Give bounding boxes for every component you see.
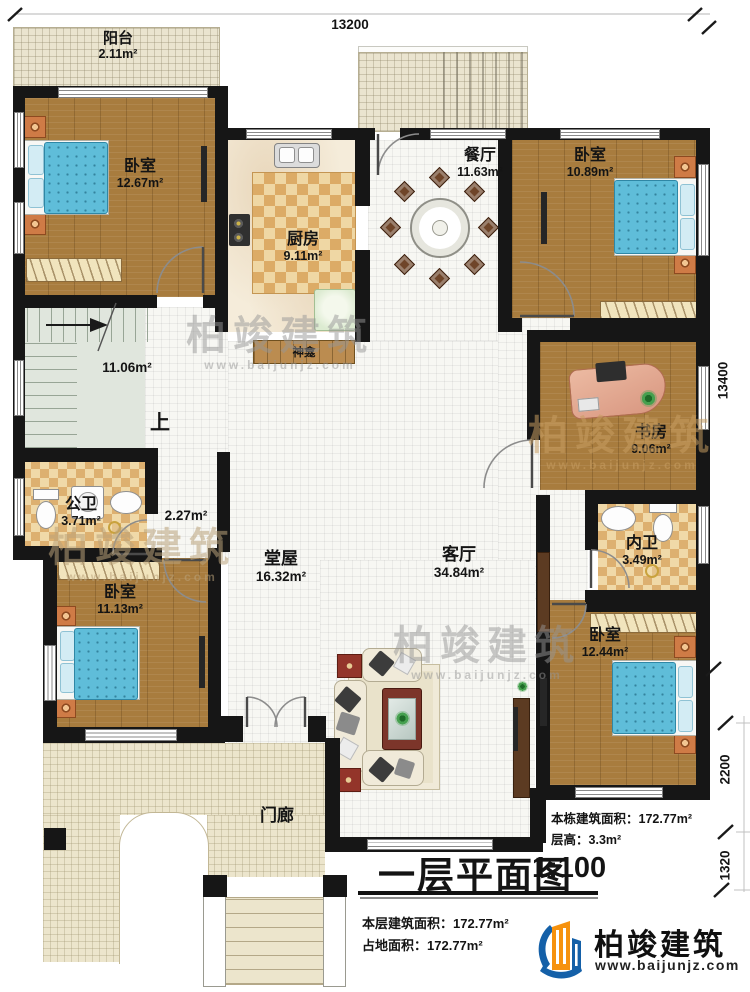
stove-burner [231, 232, 246, 243]
wall [325, 738, 340, 848]
window [575, 787, 663, 798]
room-label-kitchen: 厨房 9.11m² [284, 231, 323, 264]
pillow [680, 184, 695, 216]
dimension-side-lower: 2200 [718, 742, 733, 798]
room-name: 卧室 [97, 584, 143, 602]
window [246, 129, 332, 139]
window [14, 112, 24, 168]
room-area: 9.11m² [284, 249, 323, 263]
room-name: 阳台 [99, 30, 138, 47]
table-plant [395, 711, 410, 726]
tv-screen [513, 707, 518, 751]
room-name: 堂屋 [256, 549, 306, 569]
wall [13, 295, 157, 308]
dimension-side-bottom: 1320 [718, 838, 733, 894]
room-label-corridor-area: 2.27m² [165, 508, 208, 524]
pillow [60, 663, 75, 693]
stove-burner [231, 218, 246, 229]
room-name: 书房 [631, 424, 671, 442]
window [560, 129, 660, 139]
wall [217, 452, 230, 552]
wall [586, 600, 710, 612]
room-area: 2.11m² [99, 47, 138, 61]
entry-step-rail-left [203, 895, 226, 987]
bed-duvet [612, 662, 676, 734]
wardrobe [26, 258, 122, 282]
room-label-stairwell-area: 11.06m² [102, 360, 152, 376]
stat-floor-height: 层高：3.3m² [551, 829, 621, 848]
bed-duvet [44, 142, 108, 214]
entry-step-rail-right [323, 895, 346, 987]
room-name: 卧室 [582, 627, 629, 645]
wall [358, 128, 375, 140]
stat-land-area: 占地面积：172.77m² [362, 935, 483, 954]
pillow [678, 666, 693, 698]
window [698, 164, 709, 256]
shrine-label: 神龛 [293, 344, 316, 360]
room-label-dining: 餐厅 11.63m² [457, 147, 503, 180]
nightstand [24, 116, 46, 138]
wall [527, 330, 696, 342]
tv-panel [541, 192, 547, 244]
nightstand [674, 156, 696, 178]
porch-floor-main [43, 743, 325, 815]
room-label-hall: 堂屋 16.32m² [256, 549, 306, 584]
stat-value: 172.77m² [639, 812, 693, 826]
wall [145, 448, 158, 514]
console-cabinet [537, 552, 550, 632]
window [430, 129, 506, 139]
porch-pillar [203, 875, 227, 897]
stair-direction-label: 上 [150, 412, 170, 435]
stat-label: 本栋建筑面积： [551, 812, 639, 826]
wall [308, 716, 326, 742]
wall [215, 86, 228, 332]
window [14, 202, 24, 254]
sink-basin [279, 147, 295, 163]
pillow [678, 700, 693, 732]
pillow [28, 178, 44, 208]
window [85, 729, 177, 741]
room-name: 餐厅 [457, 147, 503, 165]
room-area: 16.32m² [256, 569, 306, 585]
room-label-bedroom-sw: 卧室 11.13m² [97, 584, 143, 617]
room-area: 2.27m² [165, 508, 208, 524]
decor-plant [517, 681, 528, 692]
room-name: 客厅 [434, 545, 484, 565]
nightstand [56, 606, 76, 626]
tv-panel [199, 636, 205, 688]
room-area: 11.13m² [97, 602, 143, 616]
room-name: 卧室 [117, 158, 164, 176]
terrace-slats [443, 52, 528, 132]
stat-label: 层高： [551, 833, 589, 847]
title-underline-shadow [360, 897, 598, 899]
floor-plan-canvas: 神龛 [0, 0, 750, 992]
direction-text: 上 [150, 412, 170, 434]
room-area: 12.67m² [117, 176, 164, 190]
computer-monitor [595, 361, 627, 383]
window [44, 645, 56, 701]
brand-logo-icon [534, 918, 588, 982]
room-label-bedroom-ne: 卧室 10.89m² [567, 147, 614, 180]
room-name: 厨房 [284, 231, 323, 249]
room-label-bedroom-nw: 卧室 12.67m² [117, 158, 164, 191]
room-label-porch: 门廊 [260, 806, 294, 826]
dining-table-center [432, 220, 448, 236]
side-table [337, 654, 362, 678]
room-area: 12.44m² [582, 645, 629, 659]
stat-value: 172.77m² [453, 916, 509, 931]
toilet-tank [33, 489, 59, 500]
window [698, 506, 709, 564]
room-area: 34.84m² [434, 565, 484, 581]
window [698, 366, 709, 430]
bed-duvet [614, 180, 678, 254]
shrine-cabinet: 神龛 [253, 340, 355, 364]
pillow [28, 145, 44, 175]
pillow [680, 218, 695, 250]
wardrobe [58, 560, 160, 580]
porch-cutout [119, 812, 209, 964]
room-label-balcony: 阳台 2.11m² [99, 30, 138, 62]
desk-plant [640, 390, 657, 407]
nightstand [674, 636, 696, 658]
nightstand [56, 698, 76, 718]
window [14, 360, 24, 416]
room-name: 门廊 [260, 806, 294, 826]
entry-steps [225, 897, 325, 985]
nightstand [24, 213, 46, 235]
keyboard [577, 397, 599, 412]
room-area: 3.49m² [622, 553, 662, 567]
bathroom-sink [110, 491, 142, 514]
room-name: 内卫 [622, 535, 662, 553]
window [14, 478, 24, 536]
bed-duvet [74, 628, 138, 700]
room-area: 3.71m² [61, 514, 101, 528]
toilet-bowl [36, 501, 56, 529]
dimension-side: 13400 [716, 351, 731, 411]
porch-pillar [323, 875, 347, 897]
stat-building-area: 本栋建筑面积：172.77m² [551, 808, 692, 827]
room-label-bath-private: 内卫 3.49m² [622, 535, 662, 568]
wall [355, 250, 370, 342]
wall [13, 448, 150, 462]
tv-panel [540, 678, 547, 726]
wall [585, 490, 710, 504]
room-label-living: 客厅 34.84m² [434, 545, 484, 580]
wall [208, 548, 221, 729]
stat-floor-area: 本层建筑面积：172.77m² [362, 913, 509, 932]
window [58, 87, 208, 98]
title-underline [358, 891, 598, 895]
room-area: 10.89m² [567, 165, 614, 179]
pillow [60, 631, 75, 661]
room-name: 公卫 [61, 496, 101, 514]
plan-scale: 1:100 [532, 852, 606, 885]
brand-site: www.baijunjz.com [595, 957, 740, 973]
stat-label: 本层建筑面积： [362, 916, 453, 931]
stat-label: 占地面积： [362, 938, 427, 953]
wall [530, 788, 546, 843]
room-area: 11.06m² [102, 360, 152, 376]
kitchen-table [314, 289, 356, 331]
room-label-bedroom-se: 卧室 12.44m² [582, 627, 629, 660]
stat-value: 172.77m² [427, 938, 483, 953]
room-label-bath-public: 公卫 3.71m² [61, 496, 101, 529]
room-area: 9.06m² [631, 442, 671, 456]
wall [585, 490, 598, 550]
room-name: 卧室 [567, 147, 614, 165]
sink-basin [298, 147, 314, 163]
tv-panel [201, 146, 207, 202]
room-area: 11.63m² [457, 165, 503, 179]
floor-drain [108, 521, 121, 534]
bathroom-sink [601, 506, 636, 531]
room-label-study: 书房 9.06m² [631, 424, 671, 457]
dimension-top: 13200 [320, 17, 380, 32]
stat-value: 3.3m² [589, 833, 622, 847]
wall [498, 318, 522, 332]
wall [43, 548, 162, 562]
wall [221, 716, 243, 742]
wall [527, 342, 540, 440]
porch-pillar [44, 828, 66, 850]
